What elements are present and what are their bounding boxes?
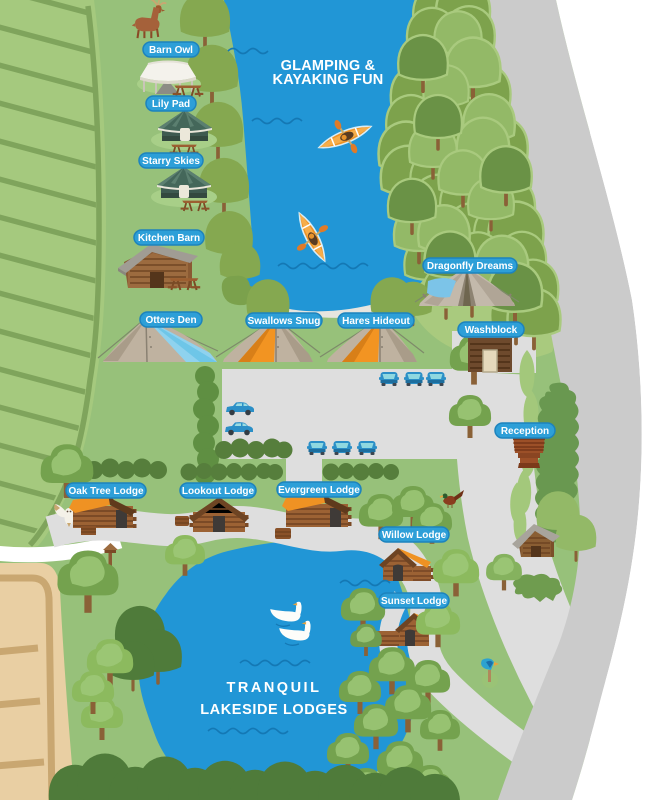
svg-text:Washblock: Washblock: [465, 325, 518, 336]
svg-text:Swallows Snug: Swallows Snug: [248, 316, 321, 327]
svg-text:Kitchen Barn: Kitchen Barn: [138, 233, 200, 244]
svg-text:KAYAKING FUN: KAYAKING FUN: [273, 72, 384, 88]
svg-text:Sunset Lodge: Sunset Lodge: [381, 596, 448, 607]
svg-text:Oak Tree Lodge: Oak Tree Lodge: [68, 486, 143, 497]
svg-text:Otters Den: Otters Den: [145, 315, 196, 326]
svg-text:Starry Skies: Starry Skies: [142, 156, 200, 167]
svg-text:Lily Pad: Lily Pad: [152, 99, 190, 110]
svg-text:Hares Hideout: Hares Hideout: [342, 316, 410, 327]
svg-text:Willow Lodge: Willow Lodge: [382, 530, 447, 541]
svg-text:Lookout Lodge: Lookout Lodge: [182, 486, 255, 497]
svg-text:Evergreen Lodge: Evergreen Lodge: [278, 485, 360, 496]
svg-text:Barn Owl: Barn Owl: [149, 45, 193, 56]
svg-text:LAKESIDE LODGES: LAKESIDE LODGES: [200, 702, 348, 718]
svg-text:Reception: Reception: [501, 426, 549, 437]
svg-text:Dragonfly Dreams: Dragonfly Dreams: [427, 261, 514, 272]
svg-text:TRANQUIL: TRANQUIL: [227, 680, 322, 696]
